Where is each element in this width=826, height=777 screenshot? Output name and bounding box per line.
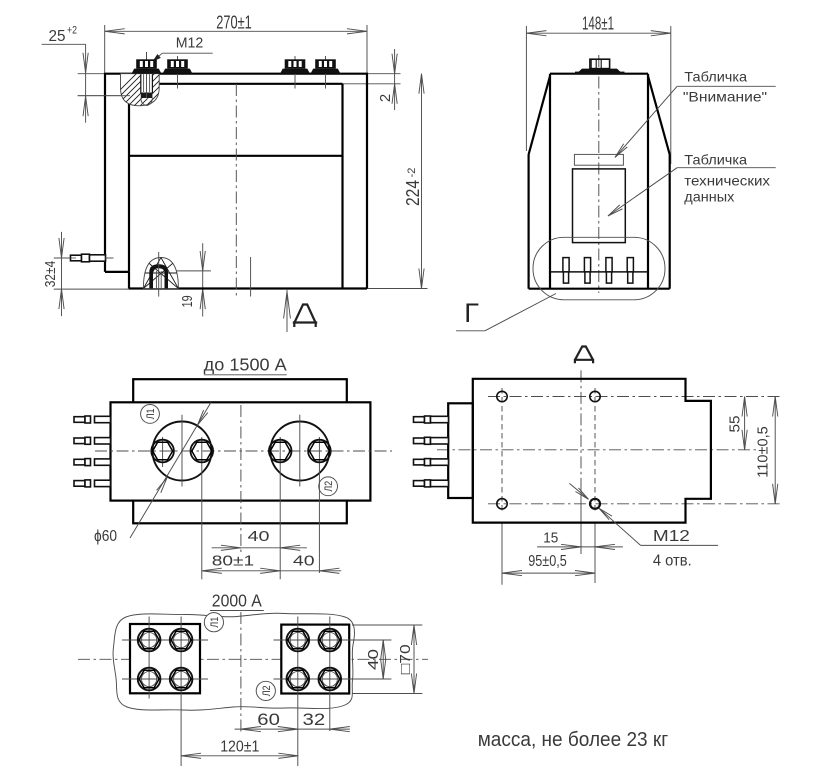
svg-text:4 отв.: 4 отв. (653, 552, 692, 569)
svg-text:М12: М12 (653, 528, 690, 545)
svg-text:40: 40 (293, 553, 315, 570)
svg-text:Л2: Л2 (261, 685, 273, 696)
svg-text:55: 55 (727, 416, 744, 433)
svg-text:технических: технических (684, 173, 770, 189)
svg-text:ϕ60: ϕ60 (94, 528, 117, 545)
svg-text:масса, не более 23 кг: масса, не более 23 кг (478, 729, 669, 751)
svg-text:"Внимание": "Внимание" (683, 88, 767, 104)
svg-text:Л2: Л2 (323, 481, 335, 492)
svg-text:Табличка: Табличка (684, 151, 747, 167)
svg-text:40: 40 (365, 649, 382, 670)
svg-text:80±1: 80±1 (212, 553, 254, 570)
svg-text:270±1: 270±1 (216, 12, 252, 32)
svg-text:32: 32 (303, 710, 326, 729)
svg-text:19: 19 (180, 295, 196, 307)
svg-text:Л1: Л1 (145, 408, 157, 419)
svg-text:Л1: Л1 (209, 617, 221, 628)
svg-text:□70: □70 (397, 644, 414, 674)
svg-text:2000 А: 2000 А (212, 591, 262, 611)
svg-text:60: 60 (257, 710, 280, 729)
svg-text:110±0,5: 110±0,5 (755, 426, 772, 477)
svg-text:224: 224 (403, 180, 423, 206)
svg-text:120±1: 120±1 (220, 739, 259, 756)
svg-text:-2: -2 (406, 168, 418, 178)
svg-text:до 1500 А: до 1500 А (204, 355, 287, 375)
svg-text:148±1: 148±1 (582, 14, 614, 34)
svg-text:95±0,5: 95±0,5 (528, 553, 567, 570)
svg-text:40: 40 (248, 528, 270, 545)
svg-text:данных: данных (684, 188, 734, 204)
svg-text:2: 2 (377, 94, 394, 102)
svg-text:25: 25 (49, 28, 66, 45)
svg-text:Г: Г (464, 298, 479, 328)
svg-text:+2: +2 (67, 25, 77, 37)
svg-text:15: 15 (543, 529, 558, 546)
svg-text:Табличка: Табличка (684, 68, 747, 84)
svg-text:М12: М12 (176, 35, 204, 52)
svg-text:32±4: 32±4 (42, 261, 59, 288)
